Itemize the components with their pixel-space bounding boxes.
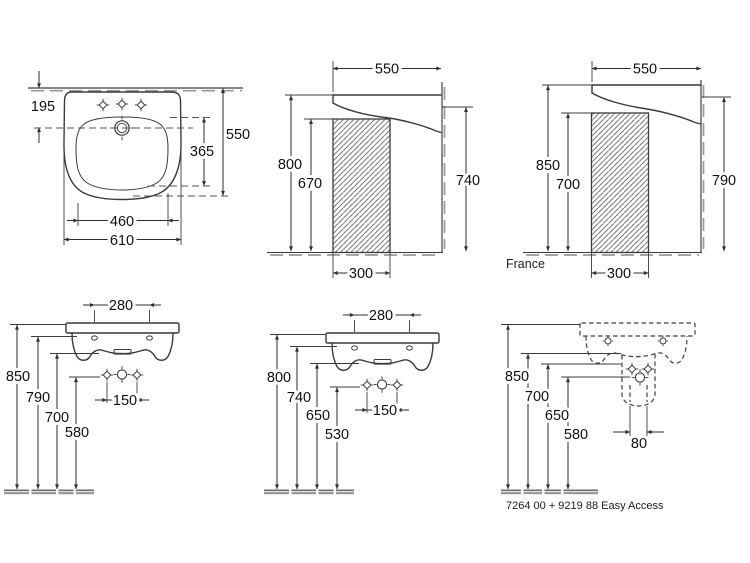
dim-fixing-height: 740 bbox=[287, 390, 311, 406]
front-view-easy-access: 850 700 650 580 80 7264 00 + 9219 88 Eas… bbox=[501, 323, 695, 512]
front-view-alt: 280 800 740 650 530 150 bbox=[264, 308, 439, 493]
basin-body bbox=[332, 343, 433, 370]
siphon-cover-dashed bbox=[622, 353, 655, 406]
fixing-hole-icon bbox=[147, 336, 153, 340]
dim-rim-height: 800 bbox=[267, 370, 291, 386]
clearance-zone bbox=[592, 113, 649, 253]
tap-hole-marker-icon bbox=[642, 363, 654, 375]
dim-rim-height: 800 bbox=[278, 157, 302, 173]
tap-hole-marker-icon bbox=[135, 99, 147, 111]
dim-tap-height: 580 bbox=[564, 427, 588, 443]
floor-segments bbox=[4, 490, 94, 493]
tap-hole-marker-icon bbox=[361, 379, 373, 391]
dim-siphon-height: 650 bbox=[545, 408, 569, 424]
basin-body-dashed bbox=[586, 336, 687, 363]
dim-depth: 550 bbox=[226, 127, 250, 143]
dim-bowl-width: 460 bbox=[110, 214, 134, 230]
dim-underside-height: 650 bbox=[306, 408, 330, 424]
basin-outline bbox=[64, 92, 181, 200]
dim-fixing-height: 790 bbox=[712, 173, 736, 189]
tap-hole-marker-icon bbox=[626, 363, 638, 375]
floor-segments bbox=[501, 490, 598, 493]
faucet-hole-icon bbox=[374, 376, 391, 393]
dim-tap-height: 530 bbox=[325, 427, 349, 443]
dim-fixing-height: 790 bbox=[26, 390, 50, 406]
tap-hole-marker-icon bbox=[116, 98, 128, 110]
dim-width: 610 bbox=[110, 233, 134, 249]
dim-rim-height: 850 bbox=[505, 369, 529, 385]
basin-rim-slab bbox=[326, 333, 439, 343]
side-view: 550 800 670 740 300 bbox=[267, 61, 480, 282]
dim-tap-centers: 150 bbox=[113, 393, 137, 409]
dim-drain-centers: 80 bbox=[631, 436, 647, 452]
fixing-hole-icon bbox=[658, 336, 668, 346]
basin-rim-slab bbox=[66, 323, 179, 333]
basin-body bbox=[72, 333, 173, 360]
dim-clearance-height: 670 bbox=[298, 176, 322, 192]
product-code-label: 7264 00 + 9219 88 Easy Access bbox=[506, 500, 664, 512]
clearance-zone bbox=[333, 119, 390, 253]
faucet-hole-icon bbox=[114, 366, 131, 383]
dim-rim-height: 850 bbox=[536, 158, 560, 174]
dim-recess-width: 300 bbox=[349, 266, 373, 282]
dim-underside-height: 700 bbox=[525, 389, 549, 405]
dim-underside-height: 700 bbox=[45, 410, 69, 426]
front-view: 280 850 790 700 580 150 bbox=[4, 298, 179, 493]
fixing-hole-icon bbox=[352, 346, 358, 350]
dim-tap-to-wall: 195 bbox=[31, 99, 55, 115]
faucet-hole-icon bbox=[632, 369, 649, 386]
fixing-hole-icon bbox=[603, 336, 613, 346]
side-view-france: 550 850 700 790 300 France bbox=[506, 61, 736, 282]
dim-fixing-centers: 280 bbox=[109, 298, 133, 314]
floor-segments bbox=[264, 490, 354, 493]
top-view: 195 550 365 460 610 bbox=[28, 71, 250, 249]
washbasin-technical-drawing: 195 550 365 460 610 550 800 670 740 300 bbox=[0, 0, 750, 563]
france-label: France bbox=[506, 257, 545, 271]
dim-fixing-height: 740 bbox=[456, 173, 480, 189]
fixing-hole-icon bbox=[407, 346, 413, 350]
dim-fixing-centers: 280 bbox=[369, 308, 393, 324]
fixing-hole-icon bbox=[92, 336, 98, 340]
dim-tap-centers: 150 bbox=[373, 403, 397, 419]
dim-clearance-height: 700 bbox=[556, 177, 580, 193]
drawing-canvas: 195 550 365 460 610 550 800 670 740 300 bbox=[0, 0, 750, 563]
tap-hole-marker-icon bbox=[97, 99, 109, 111]
dim-depth: 550 bbox=[375, 62, 399, 78]
tap-hole-marker-icon bbox=[101, 369, 113, 381]
dim-bowl-depth: 365 bbox=[190, 144, 214, 160]
dim-recess-width: 300 bbox=[607, 266, 631, 282]
tap-hole-marker-icon bbox=[131, 369, 143, 381]
dim-rim-height: 850 bbox=[6, 369, 30, 385]
dim-tap-height: 580 bbox=[65, 425, 89, 441]
basin-rim-slab-dashed bbox=[580, 323, 695, 336]
dim-depth: 550 bbox=[633, 62, 657, 78]
tap-hole-marker-icon bbox=[391, 379, 403, 391]
